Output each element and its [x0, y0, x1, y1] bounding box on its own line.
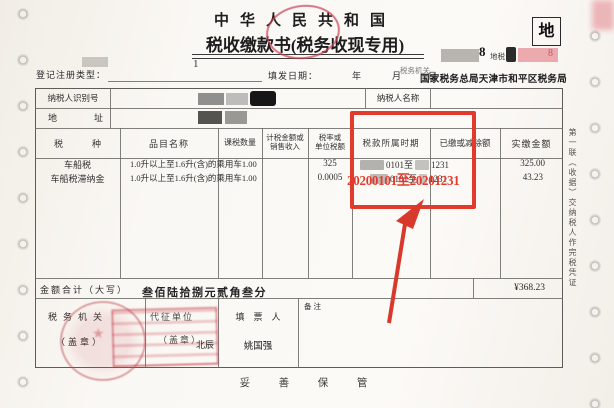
table-border-line [35, 128, 563, 129]
row1-rate: 325 [308, 158, 352, 168]
redaction-block [506, 47, 516, 62]
table-border-line [430, 88, 431, 108]
rectangular-stamp [111, 307, 218, 368]
row1-amount: 325.00 [470, 158, 545, 168]
table-border-line [500, 128, 501, 278]
row1-qty: 1.00 [242, 159, 257, 169]
row2-item: 1.0升以上至1.6升(含)的乘用车 [130, 173, 242, 183]
issue-date-label: 填发日期： [268, 69, 318, 82]
taxpayer-id-label: 纳税人识别号 [38, 92, 108, 104]
collector-name: 北辰 [196, 338, 214, 351]
redaction-block [225, 111, 247, 124]
tax-authority-stamp-text: 国家税务总局天津市和平区税务局 [420, 71, 567, 85]
right-perforation-holes [584, 0, 606, 408]
col-header-rate-line2: 单位税额 [308, 142, 352, 151]
preparer-name: 姚国强 [218, 338, 298, 352]
table-border-line [35, 278, 563, 279]
col-header-rate: 税率或 单位税额 [308, 133, 352, 151]
registration-type-label: 登记注册类型： [36, 68, 106, 81]
total-amount-numeric: ¥368.23 [490, 283, 545, 293]
date-year-label: 年 [352, 69, 361, 82]
col-header-qty: 课税数量 [218, 137, 262, 148]
redaction-block [441, 49, 479, 62]
row2-tax-type: 车船税滞纳金 [35, 172, 120, 185]
table-border-line [120, 128, 121, 278]
col-header-tax-base-line2: 销售收入 [262, 142, 308, 151]
corner-ink-smudge [592, 0, 614, 30]
col-header-tax-type: 税 种 [35, 137, 120, 150]
col-header-tax-base: 计税金额或 销售收入 [262, 133, 308, 151]
red-highlight-box [350, 111, 476, 209]
total-label: 金额合计（大写） [40, 283, 128, 296]
redaction-block [82, 57, 108, 67]
corner-tag-box: 地 [532, 17, 561, 46]
redaction-block [250, 91, 276, 106]
col-header-tax-base-line1: 计税金额或 [262, 133, 308, 142]
col-header-rate-line1: 税率或 [308, 133, 352, 142]
registration-note: 1 [193, 58, 199, 70]
blank-line [108, 81, 262, 82]
bottom-keep-note: 妥 善 保 管 [210, 375, 410, 390]
red-annotation-text: 20200101至20201231 [347, 170, 459, 190]
row1-item: 1.0升以上至1.6升(含)的乘用车 [130, 159, 242, 169]
row2-qty: 1.00 [242, 173, 257, 183]
row2-amount: 43.23 [470, 172, 543, 182]
corner-digit: 8 [479, 44, 486, 60]
stamp-star-icon: ★ [92, 326, 105, 343]
table-border-line [473, 278, 474, 298]
remarks-label: 备注 [304, 301, 323, 312]
total-amount-words: 叁佰陆拾捌元贰角叁分 [142, 284, 267, 300]
col-header-amount: 实缴金额 [500, 137, 563, 150]
row1-item-and-qty: 1.0升以上至1.6升(含)的乘用车1.00 [130, 158, 257, 170]
table-border-line [35, 298, 563, 299]
taxpayer-name-label: 纳税人名称 [366, 92, 430, 104]
redaction-block [198, 111, 222, 124]
corner-digit-faint: 8 [548, 48, 553, 59]
row1-tax-type: 车船税 [35, 158, 120, 171]
col-header-item: 品目名称 [120, 137, 218, 150]
redaction-block [226, 93, 248, 105]
address-label: 地 址 [48, 111, 117, 124]
row2-item-and-qty: 1.0升以上至1.6升(含)的乘用车1.00 [130, 172, 257, 184]
redaction-block [198, 93, 224, 105]
table-border-line [35, 108, 563, 109]
table-border-line [298, 298, 299, 368]
table-border-line [218, 128, 219, 278]
red-arrow [376, 196, 432, 328]
left-perforation-holes [12, 0, 34, 408]
tax-payment-receipt: 中华人民共和国 税收缴款书(税务收现专用) 地 8 地税 8 登记注册类型： 1… [0, 0, 614, 408]
corner-code: 地税 [490, 51, 505, 62]
preparer-label: 填 票 人 [218, 310, 298, 323]
copy-designation-note: 第一联（收据）交纳税人作完税凭证 [567, 128, 578, 303]
